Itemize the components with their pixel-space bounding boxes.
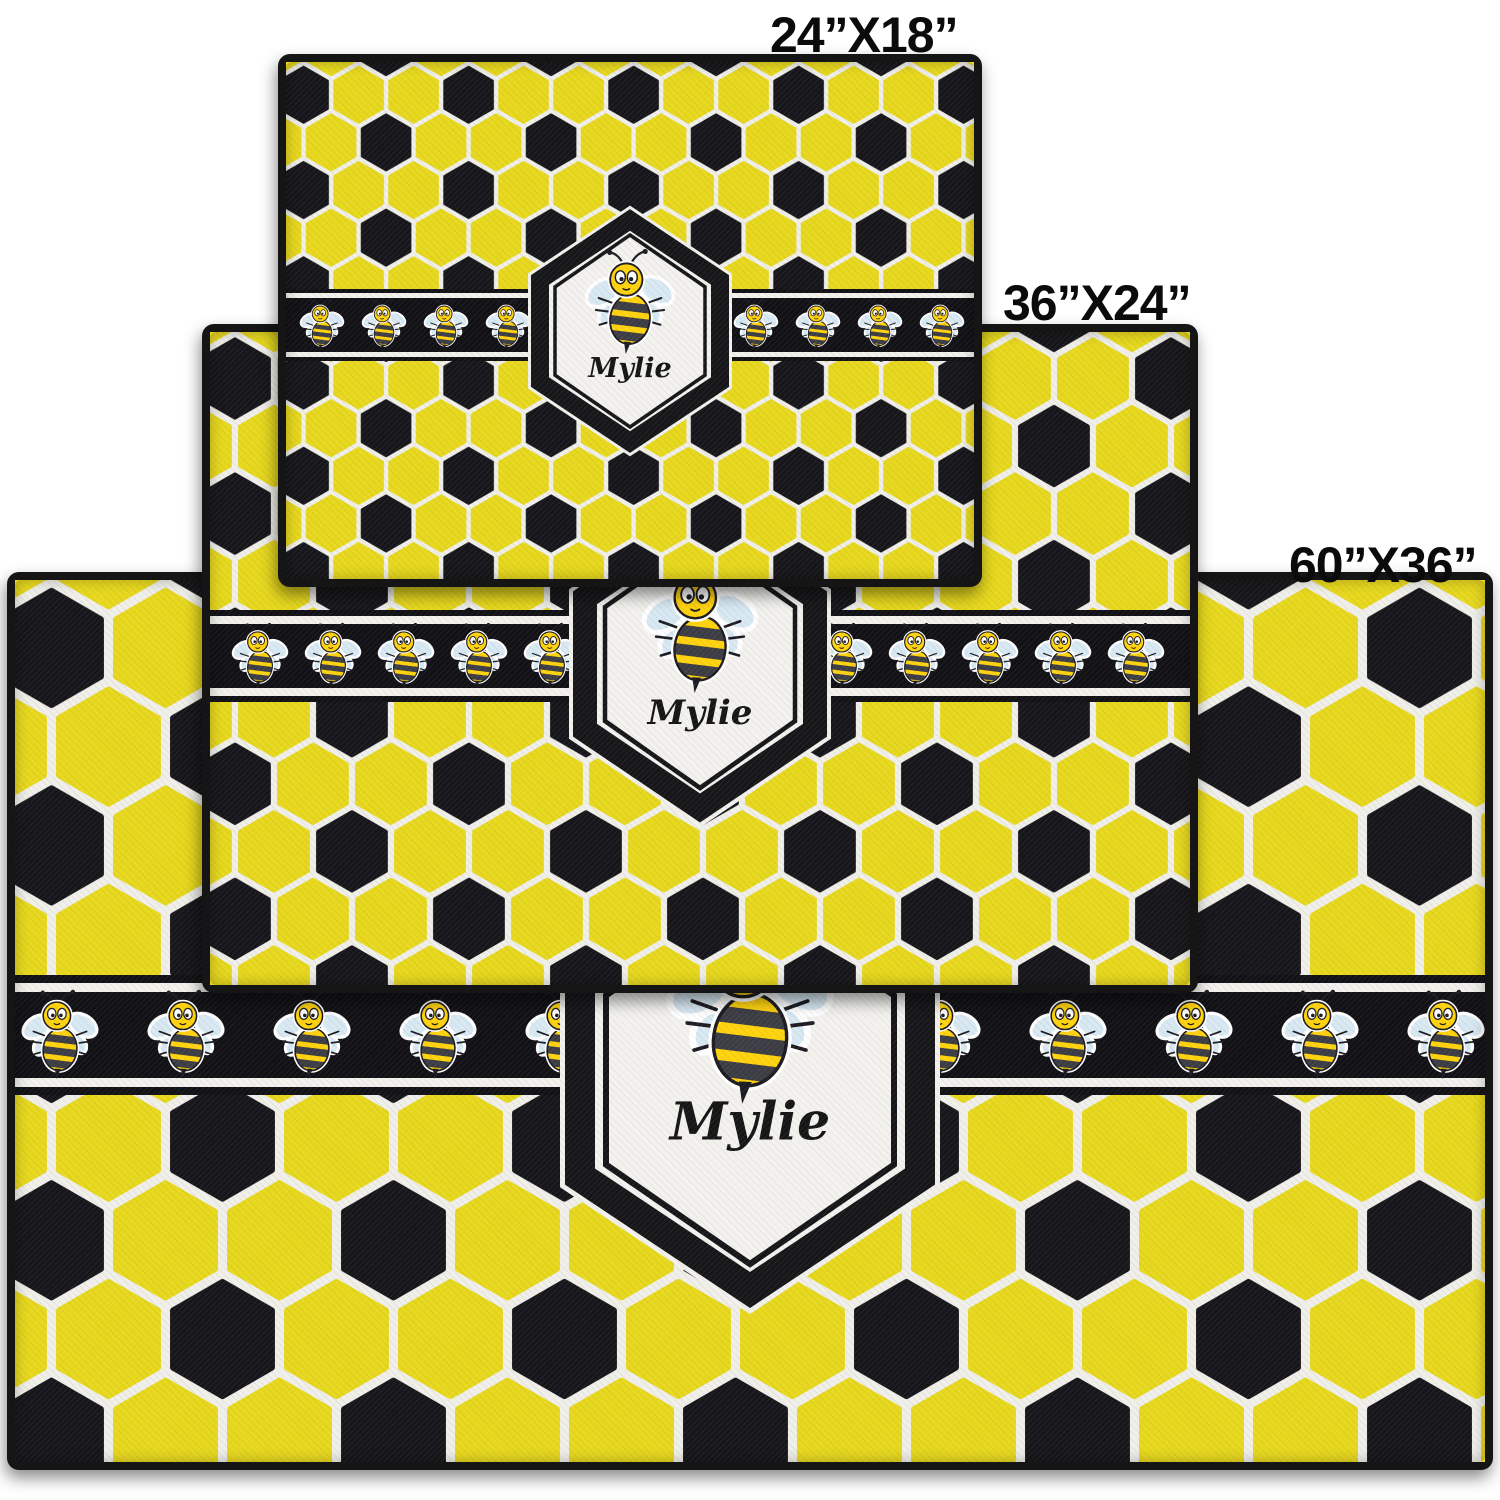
personalization-name-text: Mylie [587, 353, 671, 384]
door-mat-24x18-graphic: Mylie [286, 62, 974, 579]
door-mat-24x18: Mylie [278, 54, 982, 587]
personalization-name-text: Mylie [668, 1092, 830, 1153]
size-label-24x18: 24”X18” [770, 10, 958, 60]
personalization-name-text: Mylie [647, 693, 753, 733]
product-mockup-canvas: 24”X18” 36”X24” 60”X36” Mylie [0, 0, 1500, 1500]
size-label-36x24: 36”X24” [1003, 278, 1191, 328]
size-label-60x36: 60”X36” [1289, 540, 1477, 590]
name-badge: Mylie [540, 220, 720, 442]
